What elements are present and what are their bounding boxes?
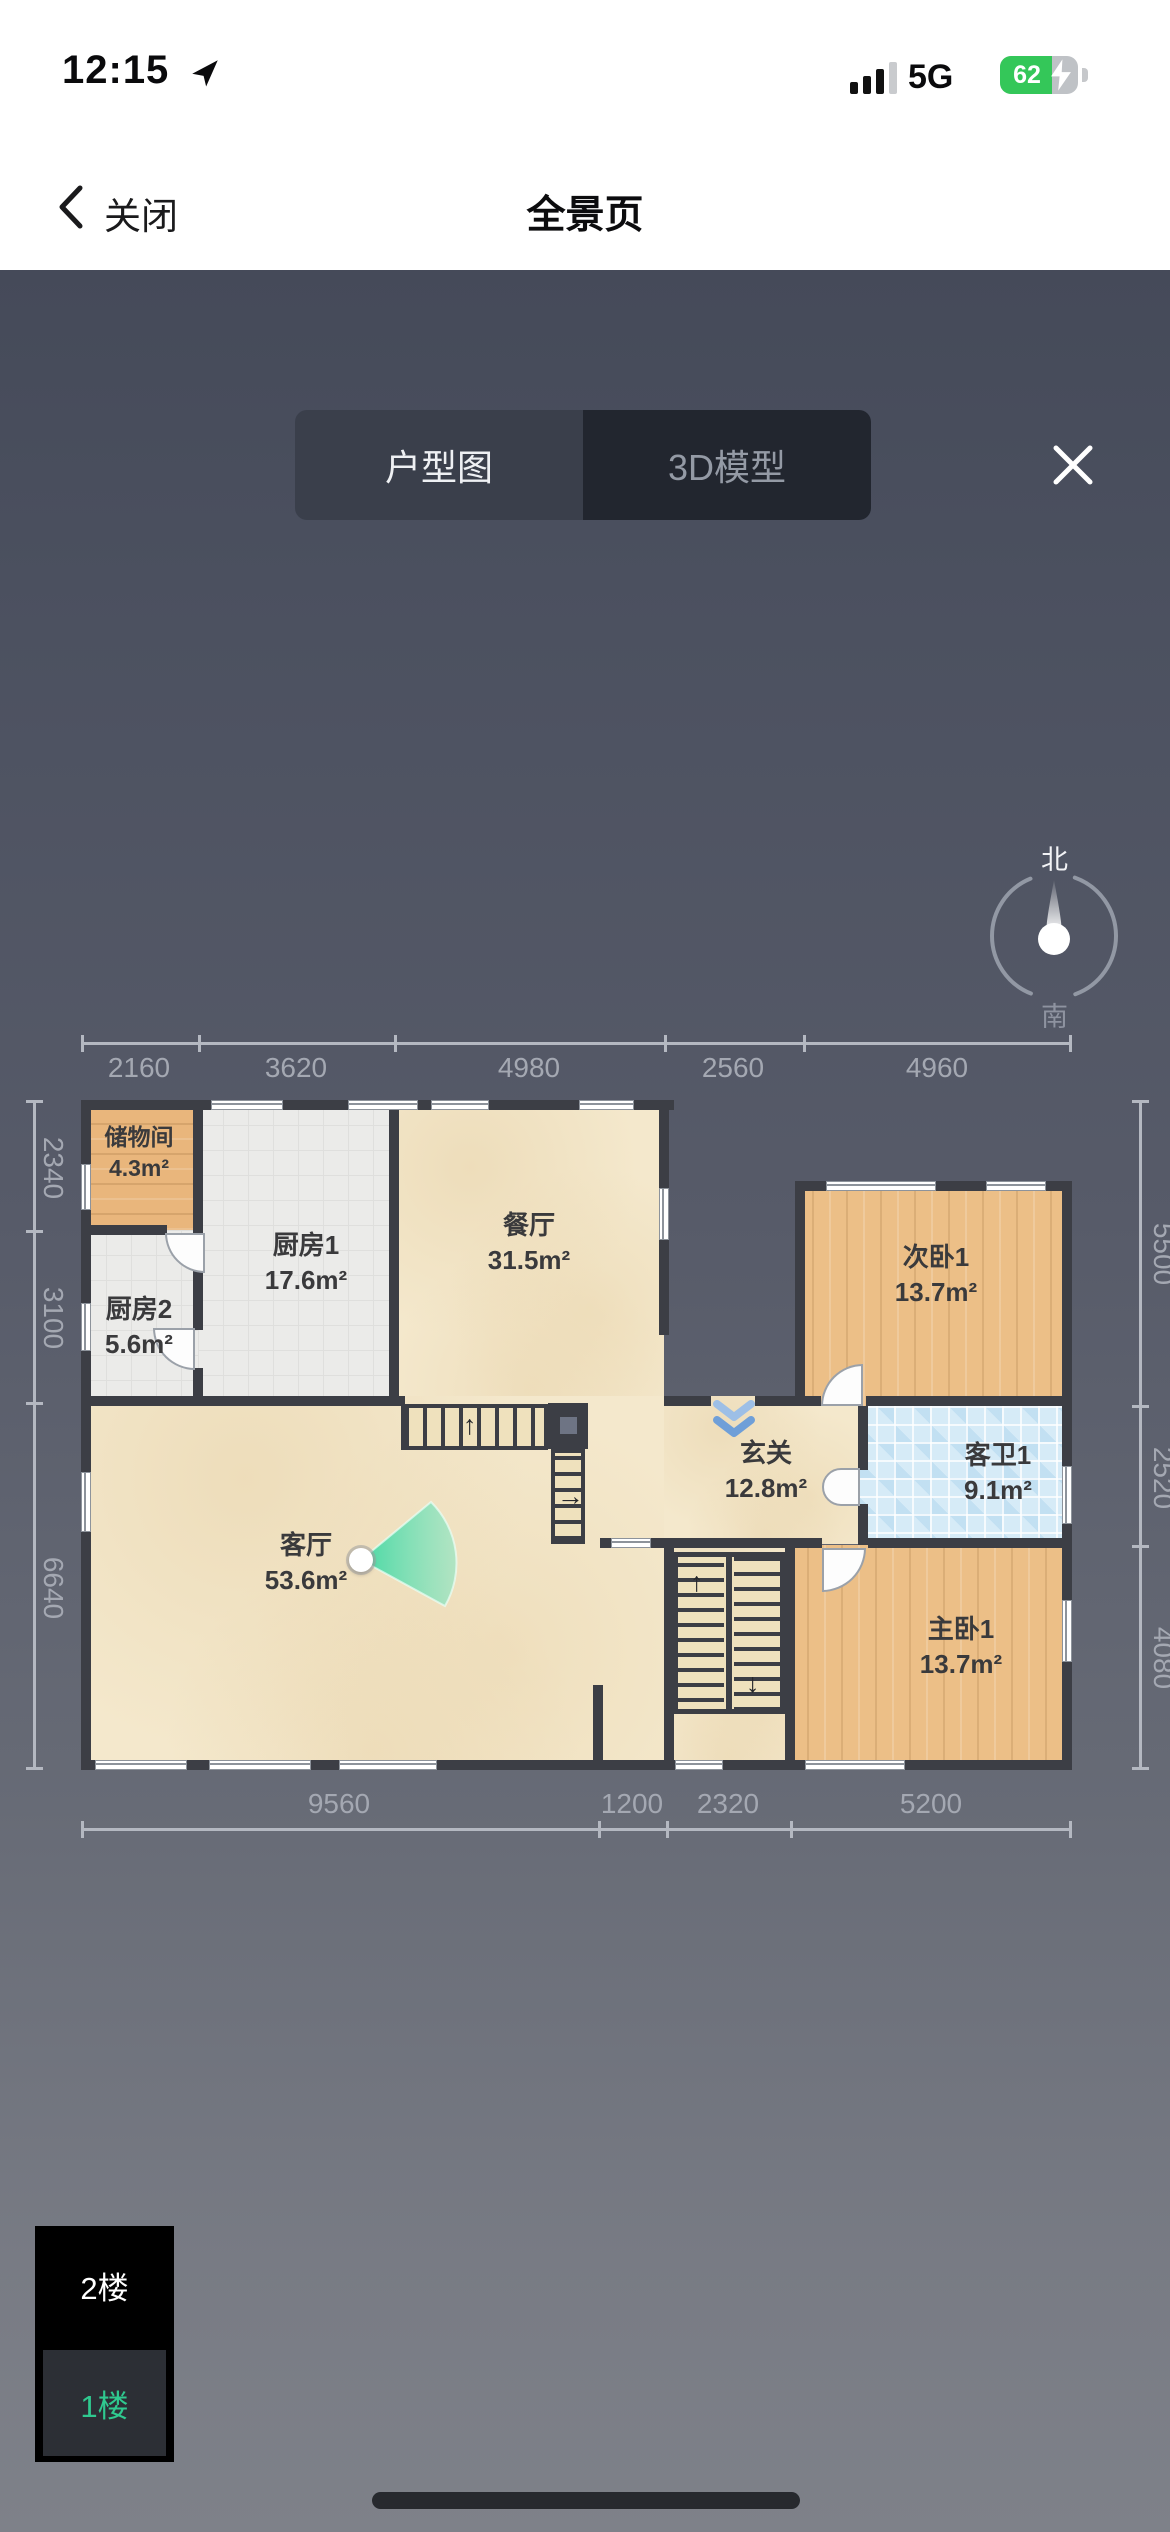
room-label-bedroom2: 次卧113.7m² <box>856 1240 1016 1310</box>
dim-top-2: 3620 <box>236 1052 356 1084</box>
floor-item-2f[interactable]: 2楼 <box>35 2226 174 2344</box>
window <box>986 1181 1046 1191</box>
window <box>579 1100 634 1110</box>
page-title: 全景页 <box>0 184 1170 240</box>
wall <box>785 1545 795 1770</box>
wall <box>866 1396 1072 1406</box>
window <box>431 1100 489 1110</box>
battery-percent: 62 <box>1004 61 1050 90</box>
dim-left-3: 6640 <box>37 1528 69 1648</box>
window <box>826 1181 936 1191</box>
room-label-kitchen1: 厨房117.6m² <box>226 1228 386 1298</box>
floor-selector: 2楼 1楼 <box>35 2226 174 2462</box>
network-type: 5G <box>908 58 953 97</box>
stairs-down-arrow: ↓ <box>746 1670 760 1697</box>
dim-top-3: 4980 <box>469 1052 589 1084</box>
window <box>211 1100 283 1110</box>
panorama-viewer-area: 户型图 3D模型 北 南 <box>0 270 1170 2532</box>
wall <box>755 1396 821 1406</box>
dim-left-1: 2340 <box>37 1108 69 1228</box>
wall <box>81 1225 167 1235</box>
dim-left-2: 3100 <box>37 1258 69 1378</box>
close-icon <box>1048 440 1098 490</box>
dim-bottom-1: 9560 <box>279 1788 399 1820</box>
floor-item-1f[interactable]: 1楼 <box>43 2350 166 2456</box>
room-label-dining: 餐厅31.5m² <box>449 1208 609 1278</box>
close-overlay-button[interactable] <box>1018 410 1128 520</box>
window <box>659 1188 669 1240</box>
dim-top-5: 4960 <box>877 1052 997 1084</box>
wall <box>868 1538 1072 1548</box>
wall <box>664 1545 674 1770</box>
dim-bottom-3: 2320 <box>668 1788 788 1820</box>
shaft-block <box>548 1403 588 1449</box>
window <box>1062 1600 1072 1662</box>
wall <box>389 1100 399 1406</box>
dim-right-1: 5500 <box>1147 1194 1170 1314</box>
window <box>95 1760 187 1770</box>
dim-top-1: 2160 <box>79 1052 199 1084</box>
room-label-kitchen2: 厨房25.6m² <box>81 1292 197 1362</box>
wall <box>664 1396 711 1406</box>
stairs-up-arrow: ↑ <box>463 1412 477 1439</box>
compass-north-label: 北 <box>972 838 1137 877</box>
stairs-right-arrow: → <box>557 1483 584 1510</box>
wall <box>81 1396 405 1406</box>
window <box>209 1760 311 1770</box>
window <box>81 1472 91 1532</box>
location-arrow-icon <box>188 56 222 95</box>
charging-bolt-icon <box>1046 58 1076 94</box>
window <box>675 1760 723 1770</box>
home-indicator[interactable] <box>372 2492 800 2509</box>
camera-position-marker[interactable] <box>349 1548 373 1572</box>
wall <box>858 1406 868 1470</box>
dim-right-2: 2520 <box>1147 1418 1170 1538</box>
stairs-up-arrow: ↑ <box>690 1569 704 1596</box>
room-label-bath1: 客卫19.1m² <box>923 1438 1073 1508</box>
battery-nub <box>1082 68 1088 82</box>
room-label-storage: 储物间4.3m² <box>83 1122 195 1184</box>
dimension-line-top <box>81 1042 1072 1045</box>
dim-bottom-4: 5200 <box>871 1788 991 1820</box>
dim-top-4: 2560 <box>673 1052 793 1084</box>
dimension-line-right <box>1139 1100 1142 1770</box>
wall <box>593 1685 603 1770</box>
floor-plan: ↑ → ↑ ↓ <box>81 1100 1072 1770</box>
dim-right-3: 4080 <box>1147 1598 1170 1718</box>
status-time: 12:15 <box>62 48 169 93</box>
camera-view-cone[interactable] <box>353 1488 503 1638</box>
entry-direction-icon <box>711 1400 757 1447</box>
room-label-bedroom-master: 主卧113.7m² <box>881 1612 1041 1682</box>
stairs-main: ↑ ↓ <box>673 1552 785 1714</box>
compass-south-label: 南 <box>972 995 1137 1034</box>
window <box>611 1538 651 1548</box>
status-and-nav-bar: 12:15 5G 62 关闭 全景页 <box>0 0 1170 270</box>
battery-icon: 62 <box>1000 56 1078 94</box>
room-label-foyer: 玄关12.8m² <box>681 1436 851 1506</box>
stairs-upper-strip: ↑ <box>401 1404 548 1450</box>
tab-floorplan[interactable]: 户型图 <box>295 410 583 520</box>
dimension-line-bottom <box>81 1828 1072 1831</box>
wall <box>795 1181 805 1406</box>
window <box>339 1760 437 1770</box>
dimension-line-left <box>33 1100 36 1770</box>
wall <box>858 1504 868 1545</box>
tab-3d-model[interactable]: 3D模型 <box>583 410 871 520</box>
compass: 北 南 <box>972 838 1137 1034</box>
stairs-side-strip: → <box>551 1449 585 1544</box>
window <box>348 1100 418 1110</box>
view-mode-tabs: 户型图 3D模型 <box>295 410 871 520</box>
window <box>805 1760 905 1770</box>
